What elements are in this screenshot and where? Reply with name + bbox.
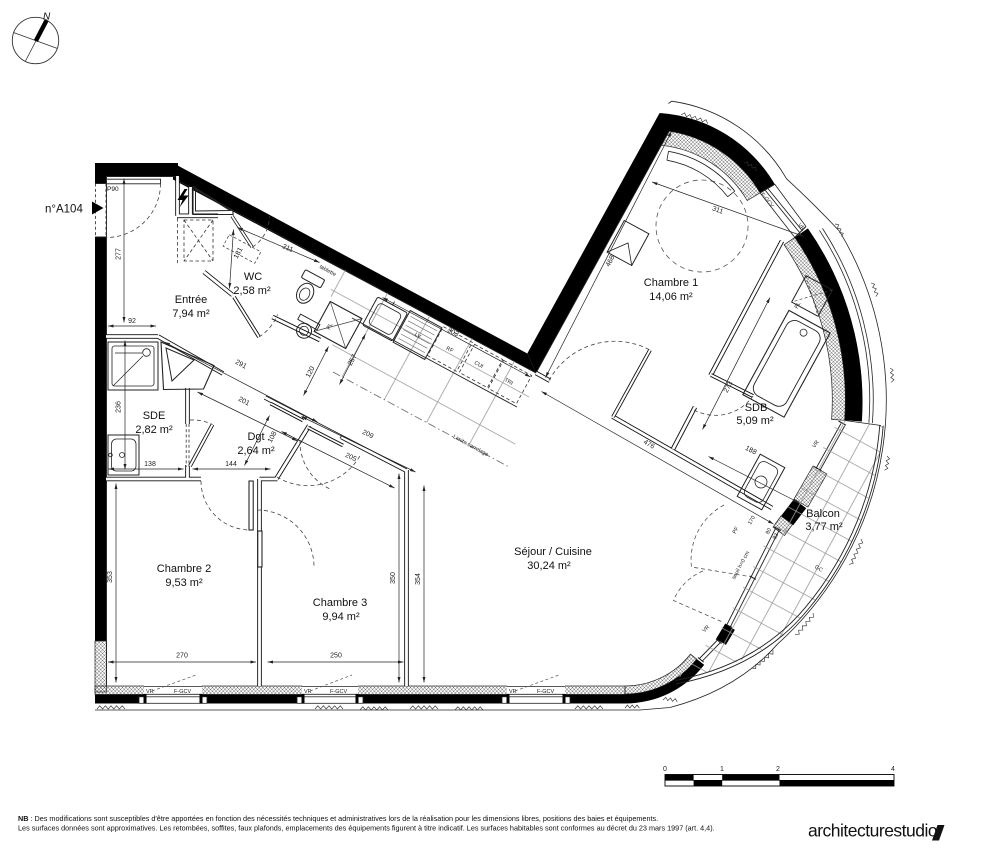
svg-text:F-GCV: F-GCV bbox=[537, 689, 554, 695]
svg-text:9,53 m²: 9,53 m² bbox=[165, 577, 203, 589]
svg-text:N: N bbox=[43, 12, 51, 23]
svg-text:architecturestudio: architecturestudio bbox=[808, 821, 937, 841]
svg-text:4: 4 bbox=[891, 766, 895, 773]
svg-text:2,58 m²: 2,58 m² bbox=[233, 285, 271, 297]
svg-text:138: 138 bbox=[144, 461, 156, 468]
svg-text:Les surfaces données sont appr: Les surfaces données sont approximatives… bbox=[18, 824, 715, 833]
svg-text:VR: VR bbox=[509, 689, 517, 695]
svg-text:270: 270 bbox=[176, 653, 188, 660]
svg-text:VR: VR bbox=[304, 689, 312, 695]
svg-text:7,94 m²: 7,94 m² bbox=[172, 308, 210, 320]
svg-text:0: 0 bbox=[663, 766, 667, 773]
svg-text:236: 236 bbox=[116, 401, 123, 413]
svg-text:2,82 m²: 2,82 m² bbox=[135, 424, 173, 436]
svg-text:277: 277 bbox=[116, 248, 123, 260]
svg-text:P90: P90 bbox=[107, 186, 119, 193]
svg-text:WC: WC bbox=[244, 271, 262, 283]
svg-text:2,64 m²: 2,64 m² bbox=[237, 445, 275, 457]
svg-text:Chambre 2: Chambre 2 bbox=[157, 563, 211, 575]
svg-text:350: 350 bbox=[390, 572, 397, 584]
svg-text:2: 2 bbox=[776, 766, 780, 773]
svg-text:Dgt: Dgt bbox=[247, 431, 264, 443]
svg-text:VR: VR bbox=[146, 689, 154, 695]
svg-text:Entrée: Entrée bbox=[175, 294, 207, 306]
svg-text:1: 1 bbox=[720, 766, 724, 773]
svg-text:14,06 m²: 14,06 m² bbox=[649, 291, 693, 303]
svg-text:Balcon: Balcon bbox=[806, 508, 840, 520]
svg-text:Chambre 3: Chambre 3 bbox=[313, 597, 367, 609]
svg-text:30,24 m²: 30,24 m² bbox=[527, 560, 571, 572]
svg-text:144: 144 bbox=[225, 461, 237, 468]
svg-text:5,09 m²: 5,09 m² bbox=[736, 415, 774, 427]
svg-text:Séjour / Cuisine: Séjour / Cuisine bbox=[514, 546, 592, 558]
svg-text:SDE: SDE bbox=[143, 410, 166, 422]
svg-text:Chambre 1: Chambre 1 bbox=[644, 277, 698, 289]
svg-text:250: 250 bbox=[330, 653, 342, 660]
svg-text:NB : Des modifications sont su: NB : Des modifications sont susceptibles… bbox=[18, 814, 658, 823]
svg-text:354: 354 bbox=[415, 573, 422, 585]
svg-text:SDB: SDB bbox=[745, 402, 768, 414]
svg-text:353: 353 bbox=[107, 571, 114, 583]
svg-text:n°A104: n°A104 bbox=[45, 204, 83, 216]
svg-text:9,94 m²: 9,94 m² bbox=[322, 611, 360, 623]
svg-text:92: 92 bbox=[128, 318, 136, 325]
svg-text:F-GCV: F-GCV bbox=[174, 689, 191, 695]
svg-text:F-GCV: F-GCV bbox=[330, 689, 347, 695]
svg-text:3,77 m²: 3,77 m² bbox=[805, 521, 843, 533]
